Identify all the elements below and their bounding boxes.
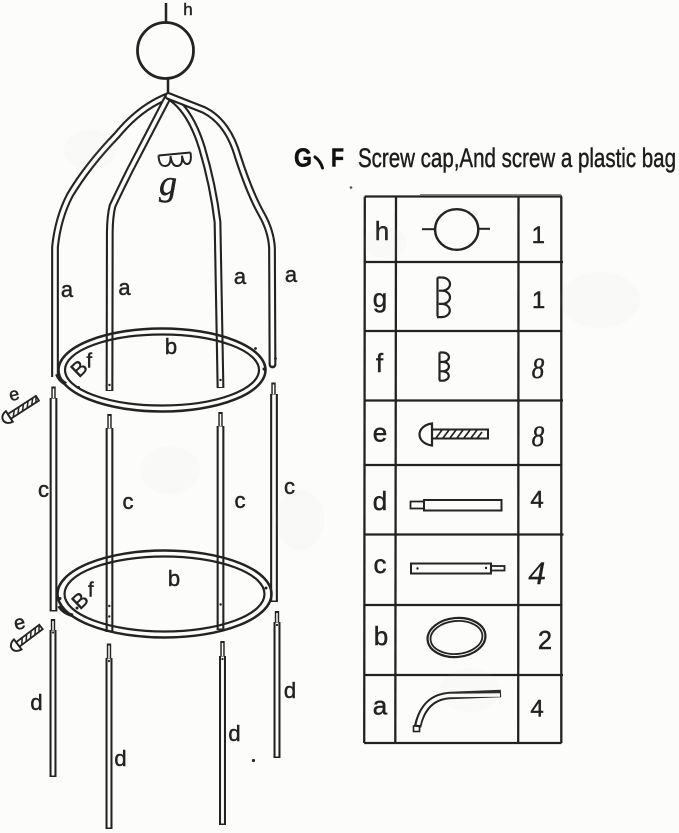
svg-text:b: b bbox=[165, 334, 177, 359]
svg-text:2: 2 bbox=[538, 627, 552, 655]
svg-text:a: a bbox=[234, 264, 247, 289]
svg-text:d: d bbox=[373, 486, 387, 516]
svg-text:a: a bbox=[61, 277, 74, 302]
svg-text:1: 1 bbox=[532, 222, 545, 249]
svg-text:d: d bbox=[284, 678, 296, 703]
svg-text:c: c bbox=[374, 549, 387, 579]
svg-text:e: e bbox=[373, 418, 387, 448]
svg-text:e: e bbox=[11, 611, 27, 635]
svg-text:d: d bbox=[114, 746, 126, 771]
svg-text:1: 1 bbox=[532, 287, 545, 314]
svg-text:G: G bbox=[294, 143, 312, 173]
svg-text:b: b bbox=[168, 566, 180, 591]
svg-text:f: f bbox=[376, 348, 384, 378]
svg-text:4: 4 bbox=[529, 556, 546, 592]
svg-text:e: e bbox=[7, 383, 22, 405]
svg-text:Screw cap,And screw a plastic: Screw cap,And screw a plastic bag bbox=[358, 143, 676, 173]
svg-text:a: a bbox=[373, 691, 388, 721]
svg-text:a: a bbox=[118, 275, 131, 300]
svg-text:8: 8 bbox=[532, 352, 545, 385]
svg-text:4: 4 bbox=[530, 696, 543, 723]
svg-text:c: c bbox=[123, 489, 134, 514]
svg-text:a: a bbox=[285, 262, 298, 287]
svg-text:h: h bbox=[183, 0, 192, 19]
svg-text:c: c bbox=[235, 488, 246, 513]
svg-text:F: F bbox=[331, 143, 344, 173]
svg-text:f: f bbox=[88, 580, 94, 602]
svg-text:8: 8 bbox=[532, 420, 545, 453]
svg-text:d: d bbox=[228, 721, 240, 746]
svg-text:g: g bbox=[373, 283, 387, 313]
svg-text:4: 4 bbox=[530, 487, 543, 514]
svg-text:d: d bbox=[30, 690, 42, 715]
svg-text:c: c bbox=[38, 477, 49, 502]
svg-text:g: g bbox=[159, 163, 177, 203]
svg-text:f: f bbox=[87, 351, 93, 373]
svg-text:b: b bbox=[374, 621, 388, 651]
